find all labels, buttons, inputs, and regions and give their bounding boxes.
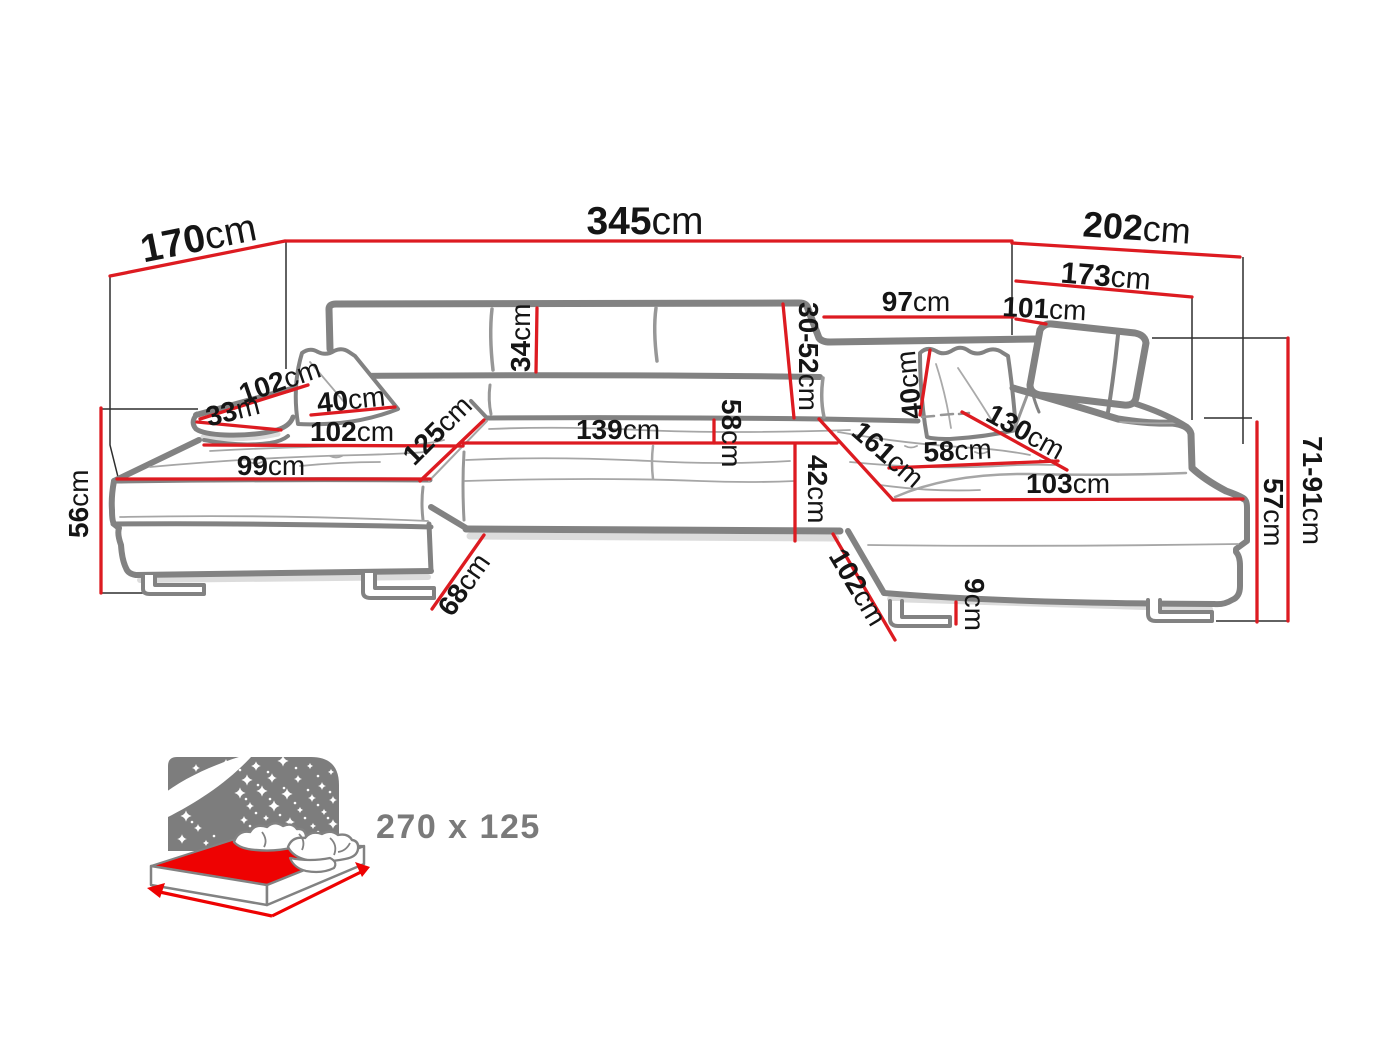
svg-text:58cm: 58cm	[922, 433, 992, 468]
svg-text:202cm: 202cm	[1082, 203, 1193, 251]
svg-text:56cm: 56cm	[63, 470, 94, 538]
svg-text:130cm: 130cm	[981, 398, 1070, 466]
svg-text:42cm: 42cm	[802, 455, 833, 523]
svg-text:161cm: 161cm	[846, 415, 930, 494]
svg-text:58cm: 58cm	[716, 399, 747, 467]
svg-text:103cm: 103cm	[1026, 468, 1110, 499]
svg-text:97cm: 97cm	[882, 286, 950, 317]
svg-text:345cm: 345cm	[586, 200, 703, 243]
svg-text:125cm: 125cm	[397, 390, 478, 471]
svg-text:68cm: 68cm	[432, 548, 497, 622]
svg-text:102cm: 102cm	[310, 416, 394, 447]
svg-text:139cm: 139cm	[576, 414, 660, 445]
svg-text:9cm: 9cm	[959, 578, 990, 631]
svg-text:270 x 125: 270 x 125	[376, 808, 541, 846]
svg-text:34cm: 34cm	[505, 304, 536, 372]
svg-text:57cm: 57cm	[1258, 478, 1289, 546]
svg-text:99cm: 99cm	[237, 450, 305, 481]
svg-text:170cm: 170cm	[137, 206, 260, 271]
svg-text:101cm: 101cm	[1002, 291, 1088, 326]
svg-text:173cm: 173cm	[1060, 257, 1152, 297]
svg-text:71-91cm: 71-91cm	[1297, 436, 1328, 545]
svg-text:30-52cm: 30-52cm	[793, 302, 824, 411]
